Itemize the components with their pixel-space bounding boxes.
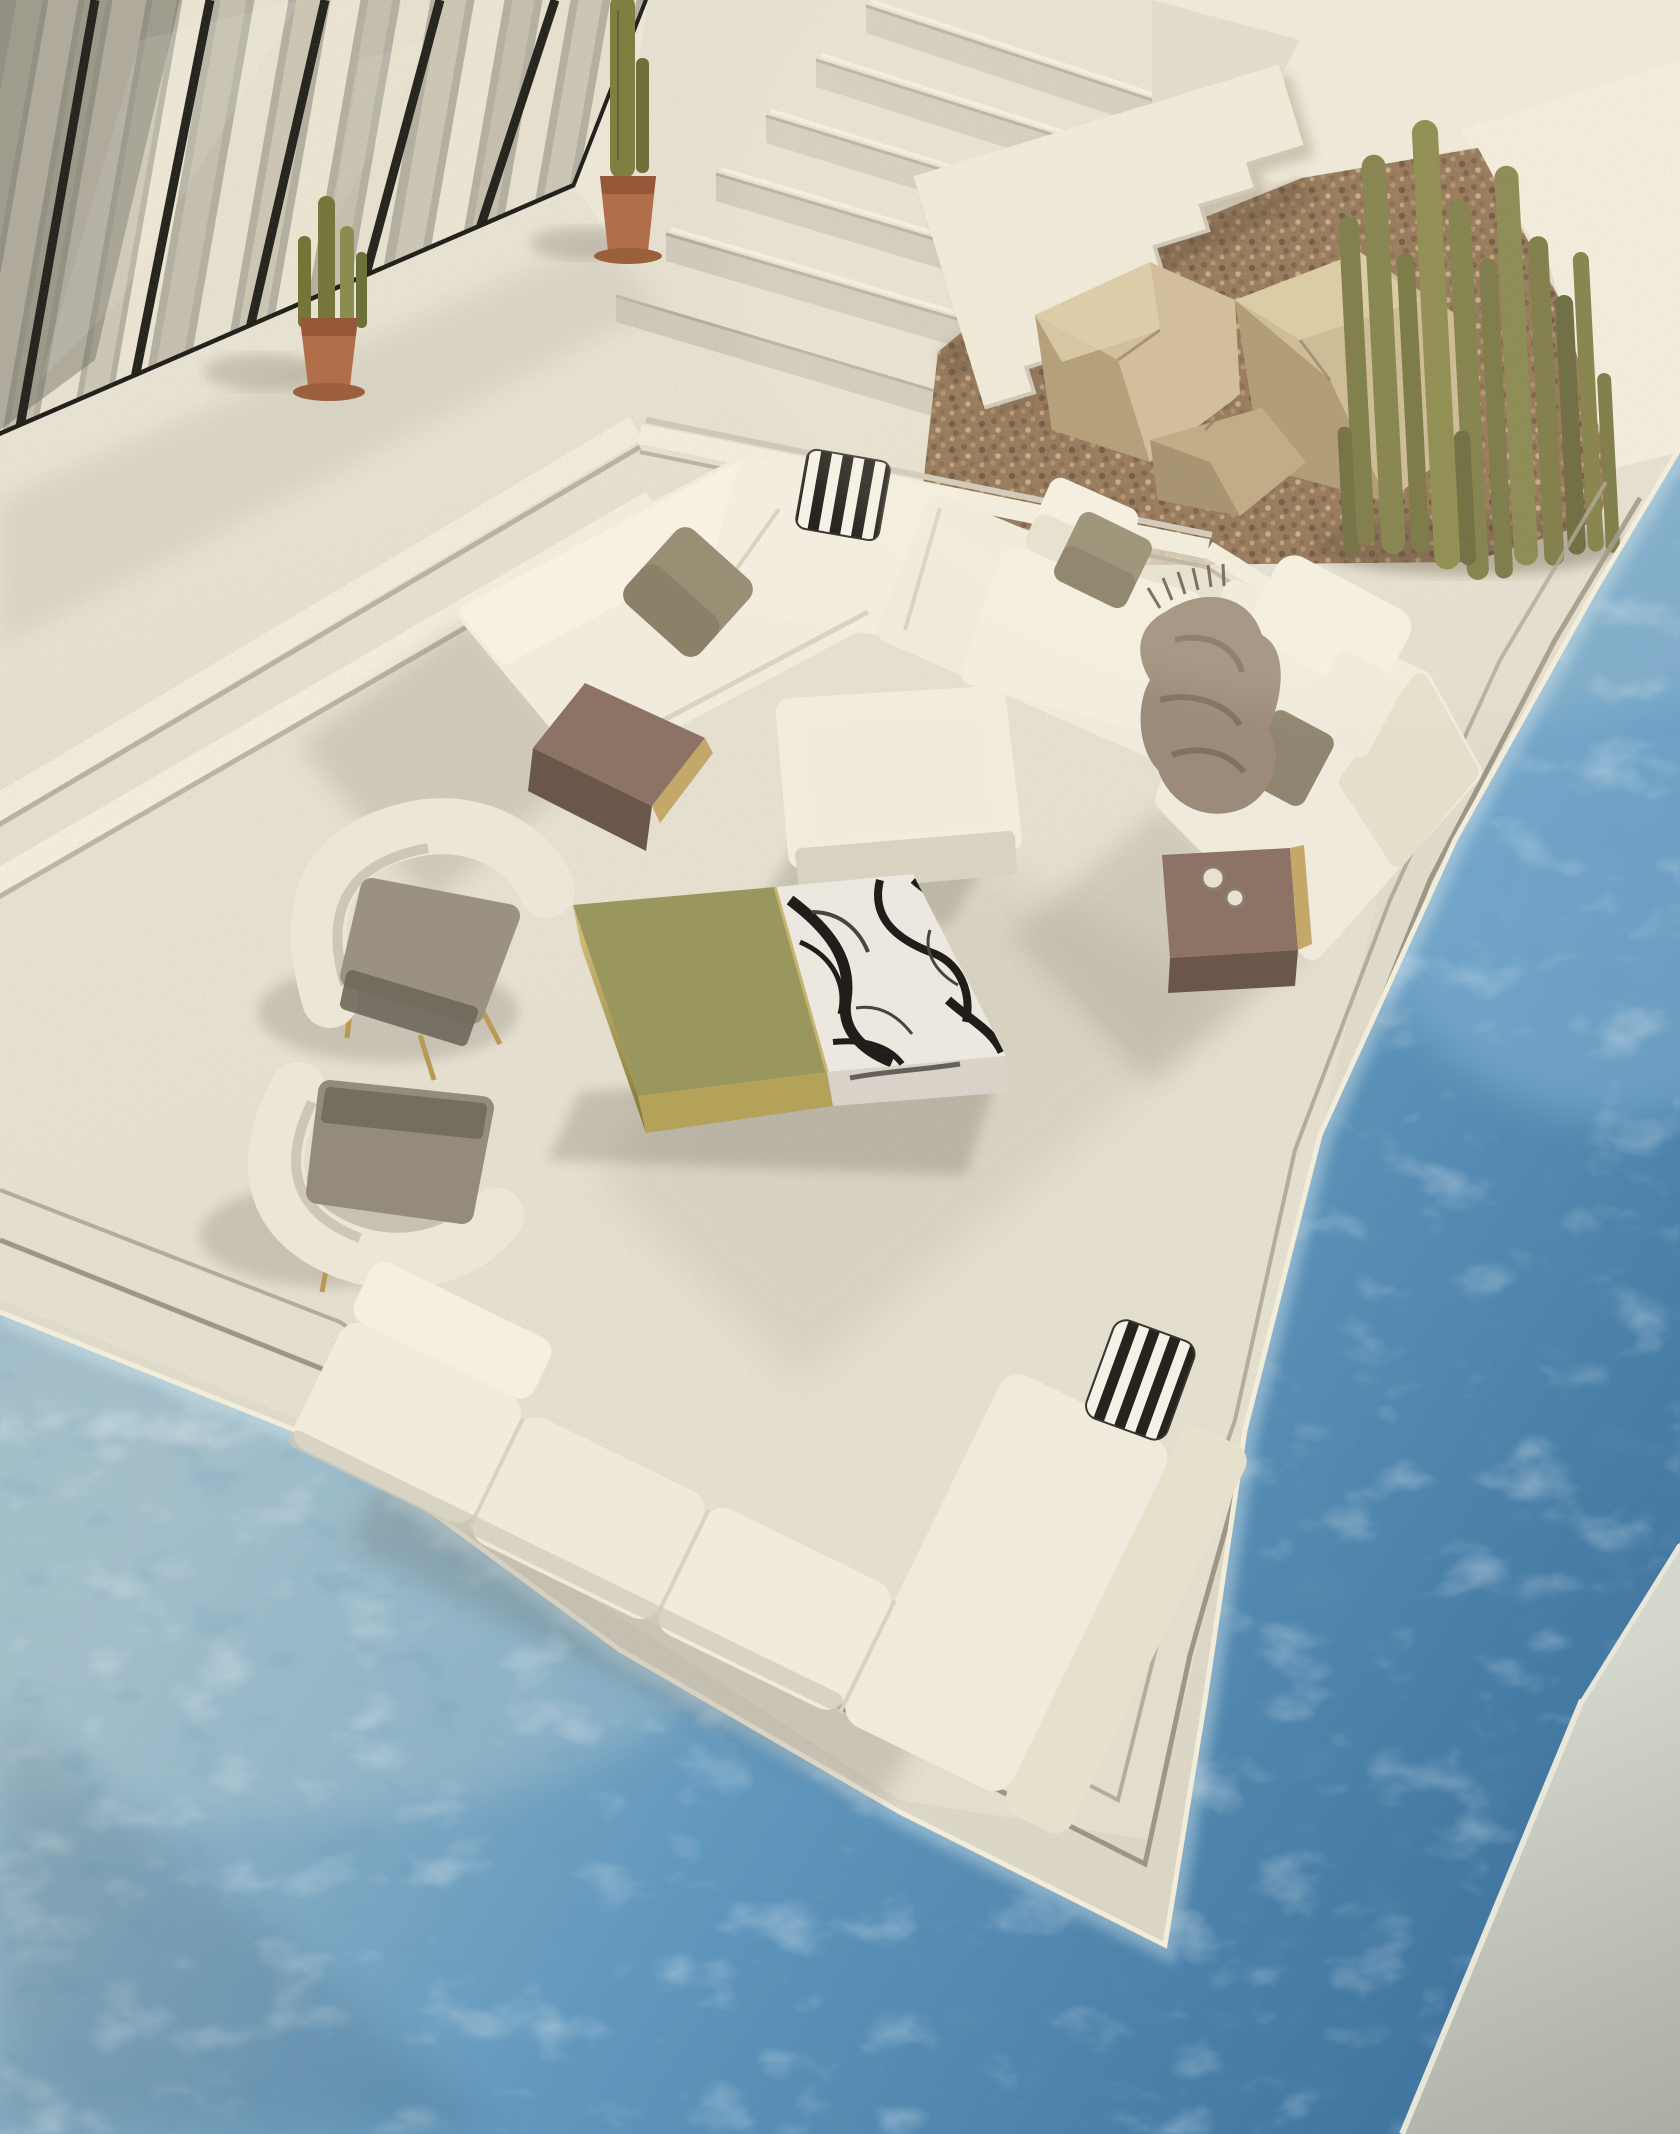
scene-svg: Aerial render of a sunken outdoor lounge… — [0, 0, 1680, 2134]
ottoman — [790, 700, 1010, 886]
render-image: Aerial render of a sunken outdoor lounge… — [0, 0, 1680, 2134]
cup-2 — [1226, 889, 1244, 907]
cup-1 — [1202, 867, 1224, 889]
cactus-tall-stem — [610, 0, 635, 179]
side-table-bronze-2 — [1162, 845, 1312, 993]
